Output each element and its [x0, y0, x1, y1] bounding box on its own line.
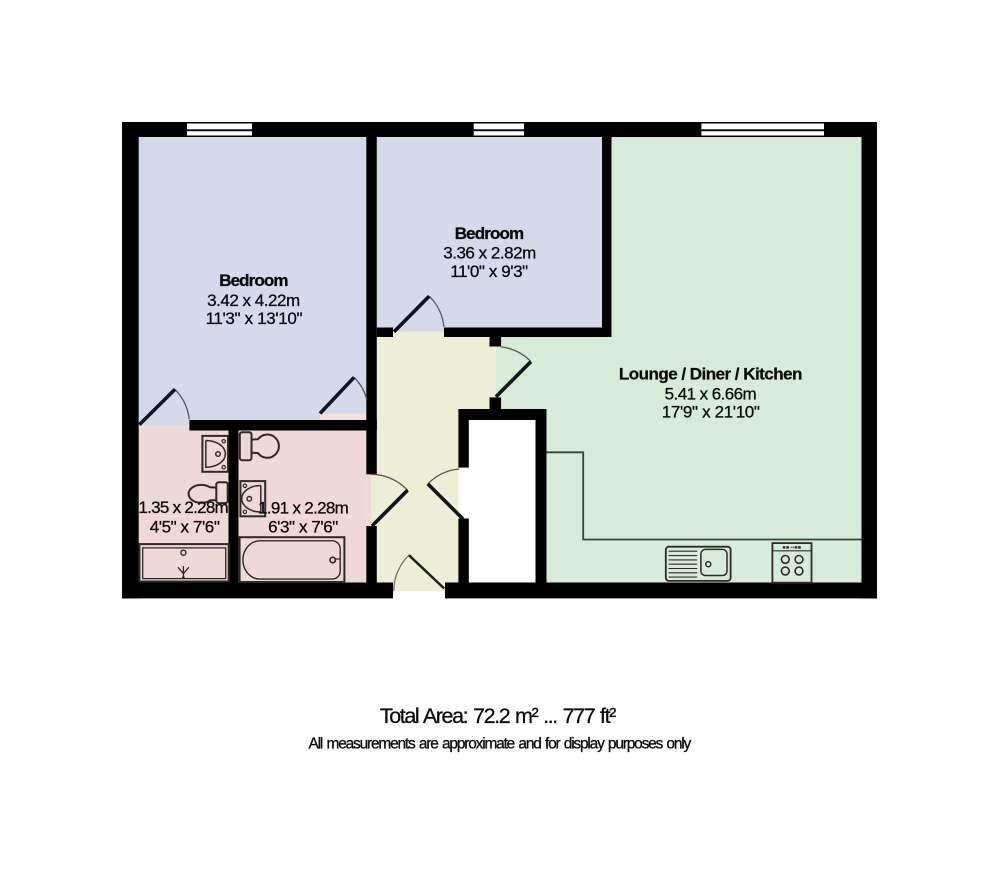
svg-text:Lounge / Diner / Kitchen: Lounge / Diner / Kitchen: [619, 365, 802, 384]
svg-text:5.41 x 6.66m: 5.41 x 6.66m: [665, 384, 757, 403]
svg-text:Bedroom: Bedroom: [455, 224, 524, 243]
svg-text:1.35 x 2.28m: 1.35 x 2.28m: [138, 498, 228, 517]
svg-text:11'0" x 9'3": 11'0" x 9'3": [450, 262, 528, 281]
svg-text:4'5" x 7'6": 4'5" x 7'6": [150, 517, 220, 536]
svg-text:Total Area: 72.2 m² ... 777 ft: Total Area: 72.2 m² ... 777 ft²: [380, 704, 616, 728]
svg-text:6'3" x 7'6": 6'3" x 7'6": [268, 517, 338, 536]
svg-text:17'9" x 21'10": 17'9" x 21'10": [662, 403, 760, 422]
svg-text:11'3" x 13'10": 11'3" x 13'10": [206, 309, 303, 328]
svg-text:3.42 x 4.22m: 3.42 x 4.22m: [207, 291, 300, 310]
svg-text:3.36 x 2.82m: 3.36 x 2.82m: [443, 244, 536, 263]
svg-text:1.91 x 2.28m: 1.91 x 2.28m: [258, 499, 349, 518]
svg-text:Bedroom: Bedroom: [219, 271, 288, 290]
svg-text:All measurements are approxima: All measurements are approximate and for…: [309, 736, 692, 753]
